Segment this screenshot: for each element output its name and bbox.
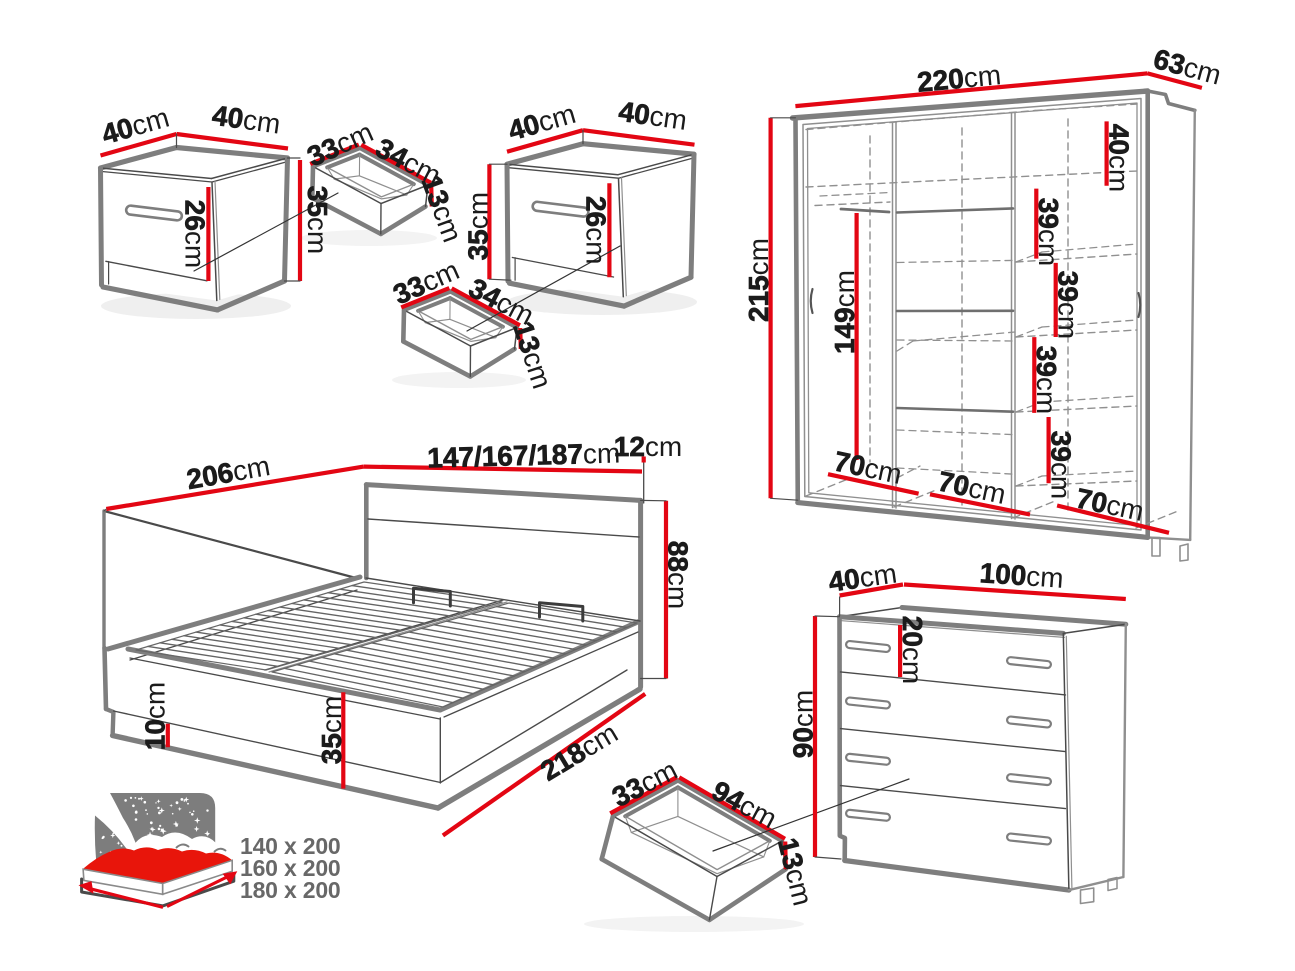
- svg-text:100cm: 100cm: [979, 557, 1065, 594]
- svg-text:26cm: 26cm: [180, 200, 211, 268]
- svg-text:35cm: 35cm: [302, 186, 333, 254]
- svg-text:88cm: 88cm: [663, 541, 694, 609]
- svg-text:147/167/187cm: 147/167/187cm: [427, 437, 621, 473]
- svg-text:39cm: 39cm: [1031, 346, 1062, 414]
- svg-text:40cm: 40cm: [1104, 124, 1135, 192]
- svg-text:215cm: 215cm: [743, 238, 774, 322]
- svg-text:39cm: 39cm: [1053, 271, 1084, 339]
- svg-text:35cm: 35cm: [316, 696, 347, 764]
- svg-text:39cm: 39cm: [1033, 198, 1064, 266]
- svg-text:180 x 200: 180 x 200: [240, 877, 341, 903]
- svg-text:10cm: 10cm: [140, 682, 171, 750]
- svg-text:149cm: 149cm: [829, 270, 860, 354]
- svg-text:39cm: 39cm: [1046, 431, 1077, 499]
- svg-text:90cm: 90cm: [788, 690, 819, 758]
- svg-text:20cm: 20cm: [897, 616, 928, 684]
- svg-text:35cm: 35cm: [463, 192, 494, 260]
- svg-text:26cm: 26cm: [581, 196, 612, 264]
- svg-text:12cm: 12cm: [614, 431, 682, 462]
